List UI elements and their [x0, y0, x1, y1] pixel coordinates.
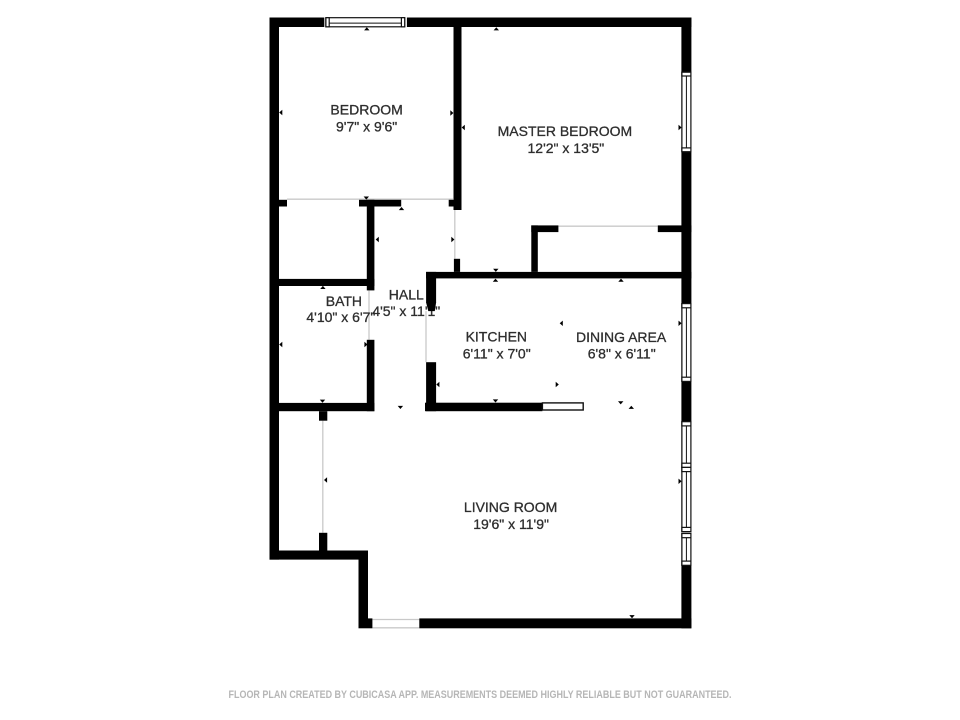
svg-text:9'7" x 9'6": 9'7" x 9'6"	[336, 119, 397, 135]
svg-text:BATH: BATH	[326, 293, 362, 309]
svg-text:12'2" x 13'5": 12'2" x 13'5"	[528, 140, 605, 156]
svg-text:LIVING ROOM: LIVING ROOM	[464, 499, 557, 515]
svg-text:4'10" x 6'7": 4'10" x 6'7"	[306, 309, 375, 325]
svg-text:19'6" x 11'9": 19'6" x 11'9"	[473, 516, 549, 532]
svg-text:KITCHEN: KITCHEN	[466, 329, 527, 345]
svg-text:6'8" x 6'11": 6'8" x 6'11"	[588, 346, 656, 362]
svg-text:HALL: HALL	[389, 287, 424, 303]
svg-text:MASTER BEDROOM: MASTER BEDROOM	[498, 123, 633, 139]
svg-text:FLOOR PLAN CREATED BY CUBICASA: FLOOR PLAN CREATED BY CUBICASA APP. MEAS…	[229, 689, 732, 701]
svg-text:6'11" x 7'0": 6'11" x 7'0"	[463, 346, 531, 362]
svg-text:DINING AREA: DINING AREA	[576, 329, 667, 345]
svg-text:BEDROOM: BEDROOM	[330, 101, 402, 117]
